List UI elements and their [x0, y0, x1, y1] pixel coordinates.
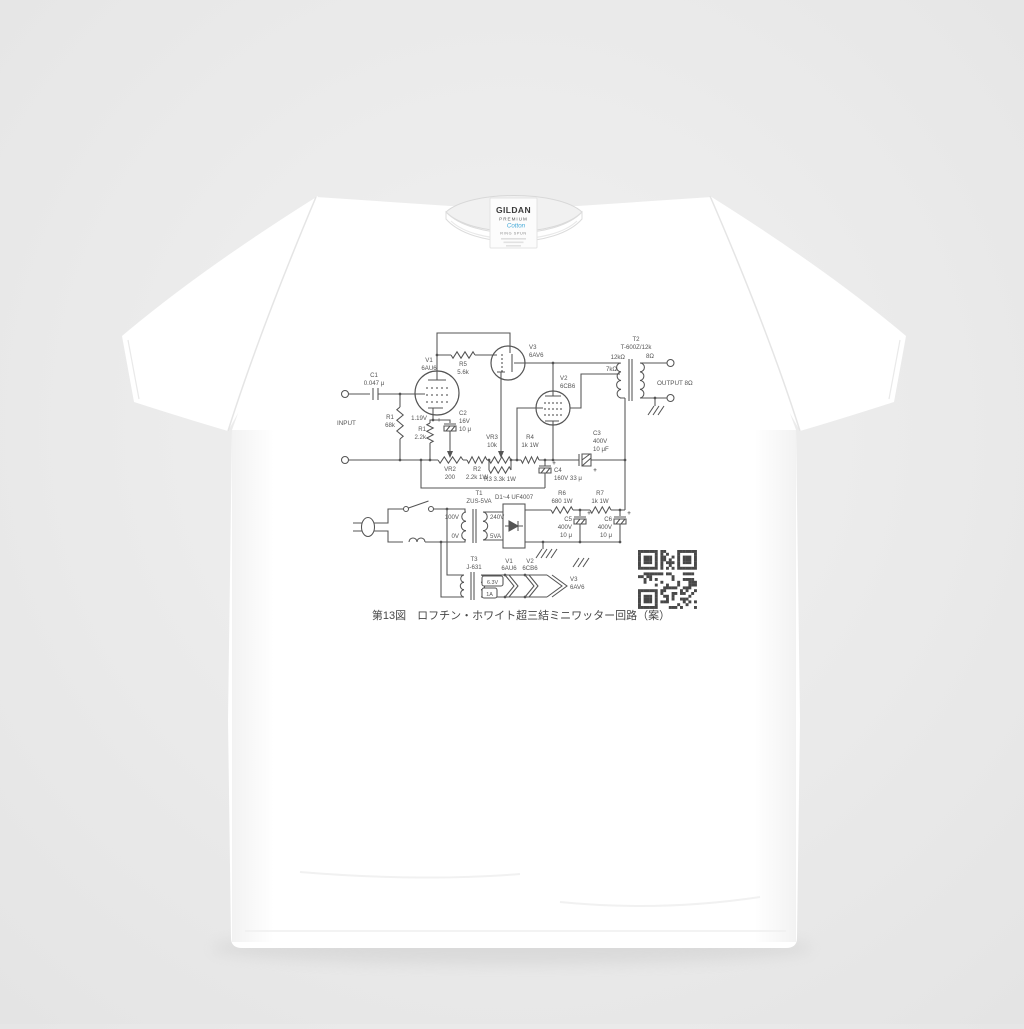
label-heater-v2: V2: [526, 558, 534, 565]
label-r6-value: 680 1W: [551, 498, 572, 505]
label-c3-plus: +: [593, 467, 597, 474]
label-rk-value: 2.2k: [414, 434, 426, 441]
brand-label-spun: RING SPUN: [500, 232, 527, 236]
label-t1-0v: 0V: [452, 533, 460, 540]
product-photo: GILDAN PREMIUM Cotton RING SPUN: [0, 0, 1024, 1029]
label-r1-value: 68k: [385, 422, 396, 429]
brand-label-line: PREMIUM: [499, 217, 528, 222]
label-c2-volt: 16V: [459, 418, 471, 425]
label-r7: R7: [596, 490, 604, 497]
label-c4-value: 160V 33 μ: [554, 475, 582, 482]
label-r3: R3 3.3k 1W: [484, 476, 516, 483]
brand-label: GILDAN PREMIUM Cotton RING SPUN: [490, 198, 537, 248]
label-c1-value: 0.047 μ: [364, 380, 385, 387]
label-heater-voltage: 6.3V: [487, 580, 498, 586]
label-c3-cap: 10 μF: [593, 446, 609, 453]
label-heater-v3: V3: [570, 576, 578, 583]
input-terminal-hot: [342, 391, 349, 398]
label-c3: C3: [593, 430, 601, 437]
label-c2-cap: 10 μ: [459, 426, 471, 433]
label-c5-plus: +: [587, 510, 591, 517]
label-r2: R2: [473, 466, 481, 473]
label-heater-v1: V1: [505, 558, 513, 565]
print-caption: 第13図 ロフチン・ホワイト超三結ミニワッター回路（案）: [372, 608, 670, 622]
label-vr3: VR3: [486, 434, 498, 441]
label-v3: V3: [529, 344, 537, 351]
label-bias: 1.19V: [411, 415, 428, 422]
label-r5-value: 5.6k: [457, 369, 469, 376]
label-t3: T3: [470, 556, 478, 563]
label-heater-v3-type: 6AV6: [570, 584, 585, 591]
output-terminal-gnd: [667, 395, 674, 402]
label-r6: R6: [558, 490, 566, 497]
label-c5: C5: [564, 516, 572, 523]
label-t1-5va: 5VA: [490, 533, 502, 540]
label-t2: T2: [632, 336, 640, 343]
label-t1-type: ZUS-5VA: [466, 498, 492, 505]
label-vr3-value: 10k: [487, 442, 498, 449]
label-v2: V2: [560, 375, 568, 382]
label-t2-type: T-600Z/12k: [621, 344, 653, 351]
label-c5-volt: 400V: [558, 524, 573, 531]
label-r7-value: 1k 1W: [591, 498, 609, 505]
label-input: INPUT: [337, 420, 356, 427]
label-c5-cap: 10 μ: [560, 532, 572, 539]
tshirt-torso: [228, 197, 800, 948]
label-v2-type: 6CB6: [560, 383, 576, 390]
label-c4: C4: [554, 467, 562, 474]
label-c6-volt: 400V: [598, 524, 613, 531]
label-t1-100v: 100V: [445, 514, 460, 521]
label-v1: V1: [425, 357, 433, 364]
label-heater-current: 1A: [486, 592, 493, 598]
label-diodes: D1~4 UF4007: [495, 494, 534, 501]
output-terminal-hot: [667, 360, 674, 367]
label-r5: R5: [459, 361, 467, 368]
label-c2-plus: +: [437, 417, 441, 424]
label-rk: R1: [418, 426, 426, 433]
tshirt-photo-canvas: GILDAN PREMIUM Cotton RING SPUN: [0, 0, 1024, 1024]
label-r4: R4: [526, 434, 534, 441]
label-v1-type: 6AU6: [421, 365, 437, 372]
label-r1: R1: [386, 414, 394, 421]
qr-code: [635, 547, 700, 612]
label-t1: T1: [475, 490, 483, 497]
torso-shade-left: [232, 430, 274, 942]
label-tap12: 12kΩ: [611, 354, 626, 361]
label-fineprint-bar: [506, 245, 521, 247]
label-c1: C1: [370, 372, 378, 379]
label-fineprint-bar: [501, 238, 526, 240]
label-heater-v1-type: 6AU6: [501, 565, 517, 572]
label-fineprint-bar: [504, 242, 524, 244]
label-sec8: 8Ω: [646, 353, 654, 360]
label-c6-cap: 10 μ: [600, 532, 612, 539]
label-c4-plus: +: [552, 460, 556, 467]
power-switch: [404, 507, 409, 512]
label-t1-240v: 240V: [490, 514, 505, 521]
brand-label-name: GILDAN: [496, 205, 531, 215]
label-output: OUTPUT 8Ω: [657, 380, 693, 387]
input-terminal-gnd: [342, 457, 349, 464]
torso-shade-right: [754, 430, 796, 942]
brand-label-sub: Cotton: [507, 223, 526, 230]
label-r4-value: 1k 1W: [521, 442, 539, 449]
label-t3-type: J-631: [466, 564, 482, 571]
label-tap7: 7kΩ: [606, 366, 617, 373]
label-vr2-value: 200: [445, 474, 456, 481]
label-c3-volt: 400V: [593, 438, 608, 445]
label-vr2: VR2: [444, 466, 456, 473]
label-v3-type: 6AV6: [529, 352, 544, 359]
label-c6: C6: [604, 516, 612, 523]
label-heater-v2-type: 6CB6: [522, 565, 538, 572]
label-c2: C2: [459, 410, 467, 417]
label-c6-plus: +: [627, 510, 631, 517]
